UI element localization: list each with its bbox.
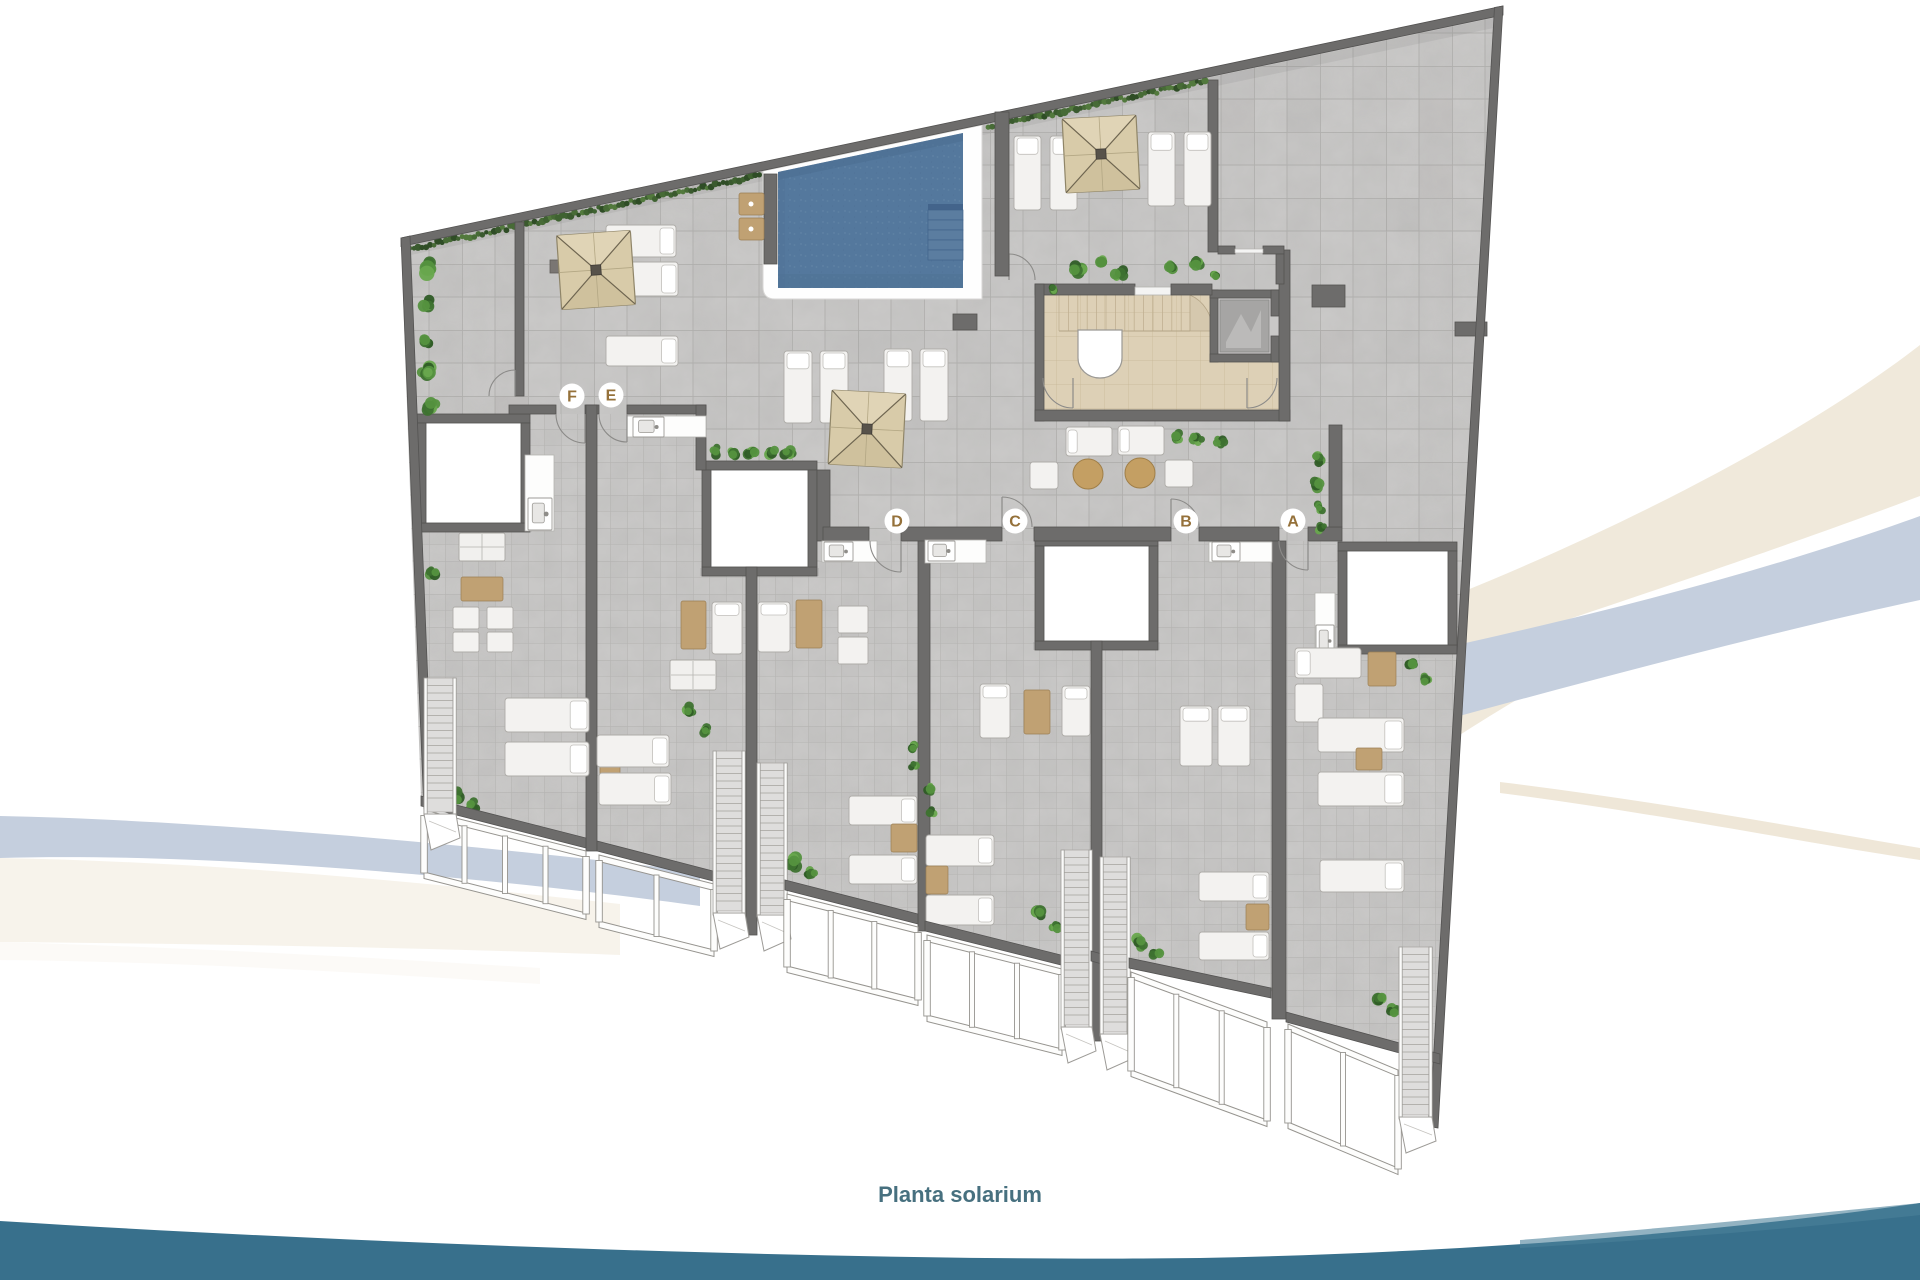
svg-text:D: D [891,514,903,531]
svg-text:Planta solarium: Planta solarium [878,1182,1042,1207]
svg-text:B: B [1180,514,1192,531]
svg-text:A: A [1287,514,1299,531]
svg-text:C: C [1009,514,1021,531]
svg-text:F: F [567,389,577,406]
svg-text:E: E [606,388,617,405]
